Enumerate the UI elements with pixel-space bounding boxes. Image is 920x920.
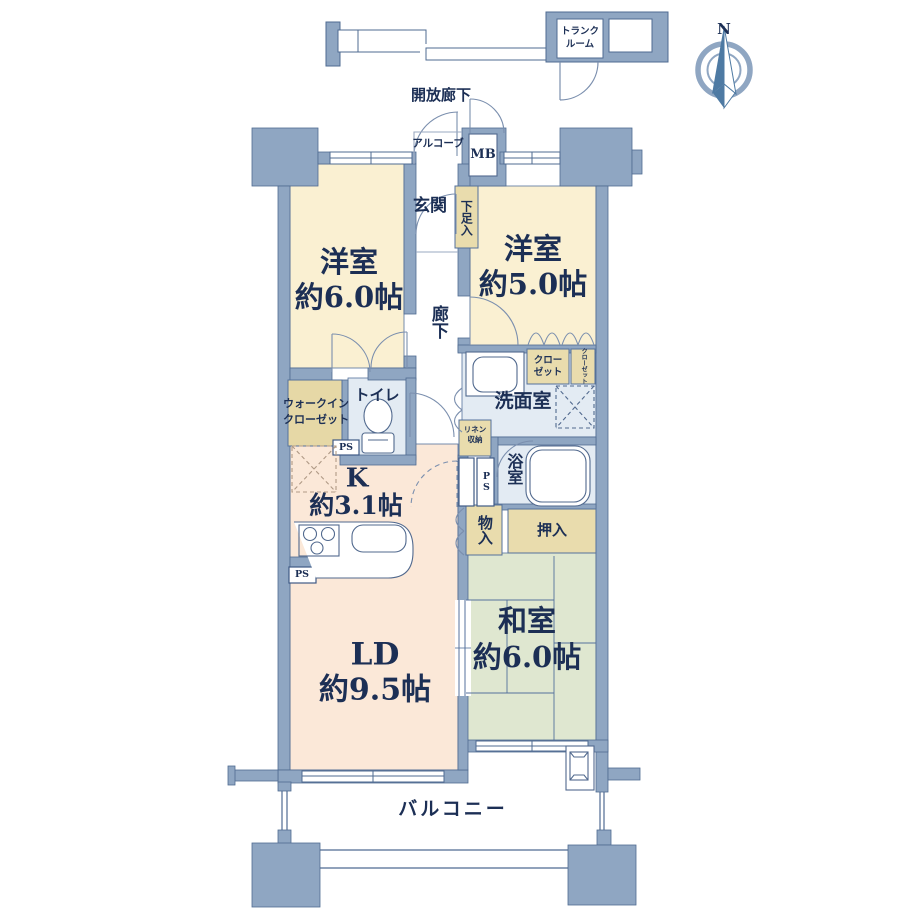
label-bedroom-east-size: 約5.0帖 [479, 269, 587, 299]
label-trunk-room-2: ルーム [566, 40, 594, 50]
label-living-dining-name: LD [351, 639, 400, 672]
label-washroom: 洗面室 [494, 392, 551, 412]
label-bedroom-east-name: 洋室 [504, 234, 562, 264]
label-meter-box: MB [470, 148, 495, 162]
open-corridor-structure [326, 12, 668, 100]
label-storage: 物入 [476, 515, 492, 545]
label-walk-in-closet-1: ウォークイン [283, 398, 349, 410]
toilet-fixture [362, 399, 394, 453]
label-trunk-room-1: トランク [561, 27, 599, 37]
label-kitchen-size: 約3.1帖 [309, 493, 403, 519]
label-compass-north: N [717, 22, 731, 38]
label-japanese-room-size: 約6.0帖 [473, 642, 581, 672]
label-closet-2: ゼット [534, 368, 563, 378]
label-living-dining-size: 約9.5帖 [319, 674, 431, 706]
water-heater [566, 746, 594, 790]
label-balcony: バルコニー [398, 800, 508, 820]
floor-plan: 開放廊下 トランク ルーム N アルコーブ MB 玄関 下足入 洋室 約6.0帖… [0, 0, 920, 920]
label-bathroom: 浴室 [505, 453, 522, 485]
label-closet-small: クローゼット [580, 348, 586, 384]
label-corridor: 廊下 [428, 305, 446, 339]
label-pipe-space-kitchen: PS [295, 570, 309, 580]
sliding-door [455, 600, 471, 696]
balcony-column-left [252, 843, 320, 907]
balcony-column-right [568, 845, 636, 905]
bathtub [526, 446, 590, 506]
label-alcove: アルコーブ [412, 138, 464, 149]
label-open-corridor: 開放廊下 [411, 88, 471, 104]
label-kitchen-name: K [346, 465, 369, 492]
label-oshiire: 押入 [537, 523, 567, 539]
label-linen-2: 収納 [468, 436, 483, 444]
label-linen-1: リネン [464, 426, 487, 434]
label-japanese-room-name: 和室 [498, 606, 556, 636]
label-pipe-space-bath: PS [481, 471, 491, 493]
label-walk-in-closet-2: クローゼット [283, 414, 349, 426]
label-toilet: トイレ [354, 388, 399, 404]
label-shoe-cabinet: 下足入 [460, 200, 473, 236]
compass-icon [698, 26, 750, 108]
label-bedroom-west-name: 洋室 [320, 247, 378, 277]
label-entrance: 玄関 [413, 198, 447, 216]
label-bedroom-west-size: 約6.0帖 [295, 282, 403, 312]
label-pipe-space-toilet: PS [339, 443, 353, 453]
label-closet-1: クロー [534, 356, 563, 366]
trunk-room-door-arc [560, 62, 598, 100]
